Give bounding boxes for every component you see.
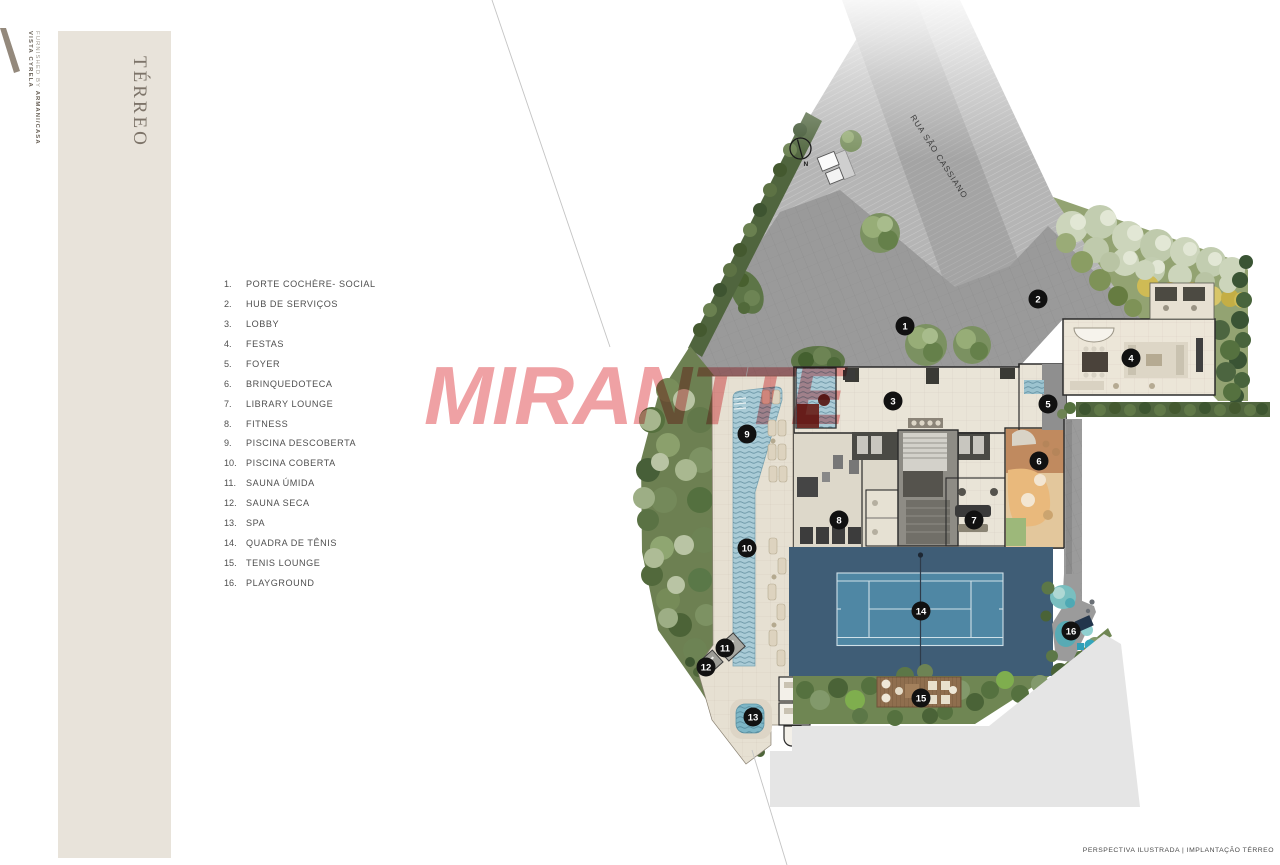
svg-text:3: 3 <box>890 397 895 408</box>
svg-text:15: 15 <box>916 694 927 705</box>
svg-text:10: 10 <box>742 544 753 555</box>
svg-text:16: 16 <box>1066 627 1077 638</box>
svg-text:12: 12 <box>701 663 712 674</box>
svg-text:5: 5 <box>1045 400 1051 411</box>
svg-text:N: N <box>804 161 809 168</box>
svg-text:14: 14 <box>916 607 927 618</box>
svg-text:11: 11 <box>720 644 731 655</box>
svg-text:13: 13 <box>748 713 759 724</box>
svg-text:8: 8 <box>836 516 841 527</box>
svg-text:6: 6 <box>1036 457 1041 468</box>
svg-text:4: 4 <box>1128 354 1134 365</box>
svg-text:7: 7 <box>971 516 976 527</box>
svg-text:1: 1 <box>902 322 908 333</box>
svg-text:2: 2 <box>1035 295 1040 306</box>
